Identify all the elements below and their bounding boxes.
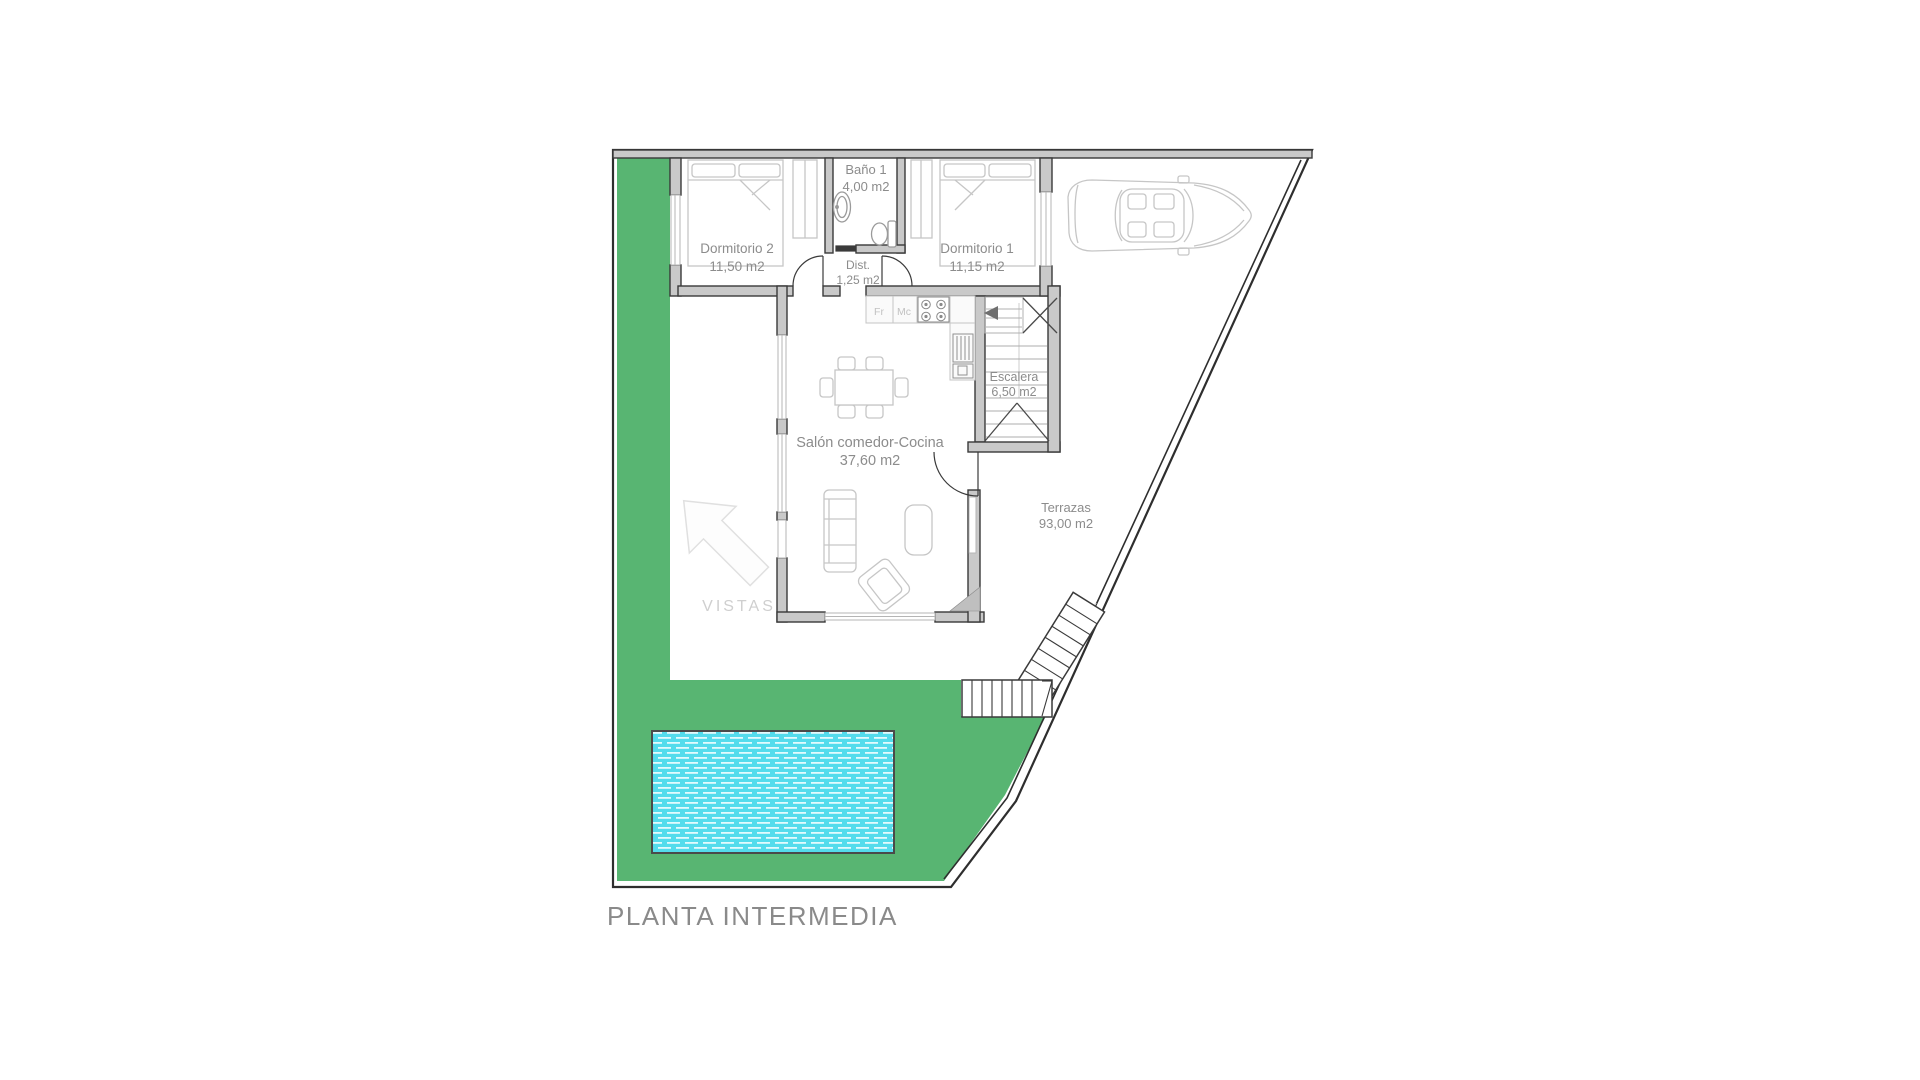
car-top-view (1068, 176, 1251, 255)
page-title: PLANTA INTERMEDIA (607, 901, 898, 931)
escalera-stairs (984, 297, 1057, 441)
stove-icon (918, 297, 949, 322)
room-label-bano1-area: 4,00 m2 (843, 179, 890, 194)
grass-strip-west (617, 157, 670, 680)
room-label-terrazas-area: 93,00 m2 (1039, 516, 1093, 531)
window-salon-east (969, 497, 976, 553)
outdoor-stairs-lower-flight (962, 680, 1052, 717)
room-label-dormitorio2-area: 11,50 m2 (709, 259, 764, 274)
room-label-bano1-name: Baño 1 (845, 162, 886, 177)
swimming-pool (652, 731, 894, 853)
room-label-dist-name: Dist. (846, 258, 870, 272)
microwave-label: Mc (897, 306, 911, 318)
bathroom-sink-icon (834, 192, 851, 222)
room-label-escalera-name: Escalera (990, 370, 1039, 384)
floor-plan-page: Fr Mc (0, 0, 1920, 1080)
fridge-label: Fr (874, 306, 884, 318)
room-label-salon-area: 37,60 m2 (840, 453, 900, 469)
room-label-dormitorio1-area: 11,15 m2 (949, 259, 1004, 274)
window-salon-west-3 (778, 520, 786, 558)
room-label-salon-name: Salón comedor-Cocina (796, 435, 944, 451)
dining-table (820, 357, 908, 418)
vistas-label: VISTAS (702, 598, 776, 615)
room-label-escalera-area: 6,50 m2 (991, 385, 1036, 399)
toilet-icon (872, 221, 897, 247)
door-arc-dormitorio2 (793, 256, 823, 286)
wall-north-band (613, 150, 1312, 158)
door-bathroom (836, 246, 855, 251)
room-label-dormitorio2-name: Dormitorio 2 (700, 241, 774, 256)
armchair (856, 557, 912, 613)
floor-plan-canvas: Fr Mc (0, 0, 1920, 1080)
vistas-arrow-icon (660, 477, 782, 599)
vistas-annotation: VISTAS (660, 477, 782, 615)
room-label-dist-area: 1,25 m2 (836, 273, 880, 287)
coffee-table (905, 505, 932, 555)
corner-shade-triangle (950, 587, 980, 611)
room-label-terrazas-name: Terrazas (1041, 500, 1091, 515)
door-arc-dormitorio1 (882, 256, 912, 286)
room-label-dormitorio1-name: Dormitorio 1 (940, 241, 1014, 256)
sofa (824, 490, 856, 572)
